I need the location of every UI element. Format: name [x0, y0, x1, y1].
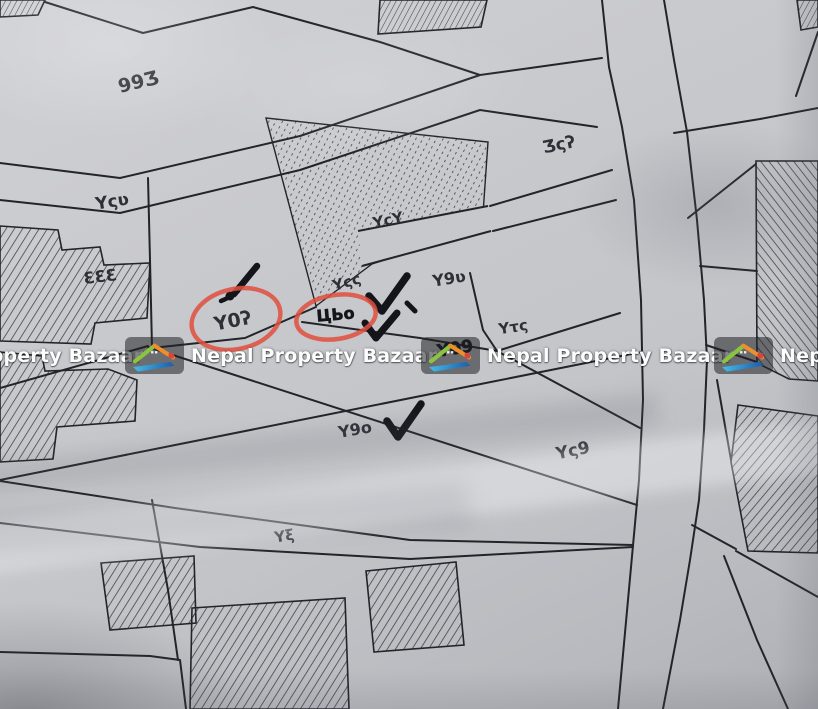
boundary-junction-wedge: [152, 307, 316, 348]
logo-roof-right: [744, 346, 763, 358]
building-left-upper: [0, 226, 150, 344]
building-top-center: [378, 0, 487, 34]
plot-number-488: Yςς: [329, 270, 362, 295]
house-logo-icon: [714, 337, 773, 374]
pen-slash-mark: [234, 266, 257, 294]
boundary-b1-left: [688, 164, 756, 218]
logo-base-swoosh: [429, 362, 470, 372]
logo-roof-left: [431, 346, 450, 362]
checkmark-annotation: [387, 404, 421, 437]
logo-roof-left: [724, 346, 743, 362]
boundary-lines: [0, 0, 818, 709]
paper-crease-shadow: [0, 481, 471, 558]
logo-window: [155, 351, 157, 353]
boundary-b1-low: [700, 266, 757, 271]
plot-number-382: Ʒςʔ: [541, 132, 577, 158]
watermark: Nepal Property Bazaar: [421, 337, 733, 374]
checkmark-annotation: [365, 313, 397, 338]
plot-number-490: Y9o: [336, 417, 373, 442]
watermark-badge: [421, 337, 480, 374]
watermark-text: Nepal Property Bazaar: [780, 345, 818, 367]
plot-number-497: Y9ʋ: [430, 267, 467, 291]
logo-window: [451, 351, 453, 353]
cadastral-map: 99ƷYςʋƷςʔƐƐƐY0ʔYcYYςςY9ʋЦЬоY09Y9oYς9YτςY…: [0, 0, 818, 709]
logo-chimney: [758, 353, 763, 358]
watermark-layer: Nepal Property Bazaar Nepal Property Baz…: [0, 0, 818, 709]
paper-shadow-patch: [570, 120, 818, 290]
road-upper-edge: [0, 58, 602, 178]
plot-number-409: Y09: [435, 336, 475, 362]
red-pen-circles: [185, 280, 379, 359]
vertical-road-left-edge: [602, 0, 643, 709]
boundary-br1: [692, 525, 736, 549]
plot-number-484: YcY: [370, 208, 406, 232]
house-logo-icon: [421, 337, 480, 374]
boundary-v4: [470, 273, 497, 351]
plot-number-46: Yξ: [272, 526, 295, 547]
boundary-br2: [736, 551, 818, 597]
plot-number-460: ЦЬо: [316, 303, 356, 325]
watermark-text: Nepal Property Bazaar: [191, 345, 437, 367]
logo-chimney: [465, 353, 470, 358]
boundary-f1: [490, 170, 612, 206]
plot-number-428: Yτς: [496, 316, 529, 339]
building-left-lower: [0, 352, 137, 462]
building-top-right: [797, 0, 818, 30]
boundary-f2: [493, 200, 616, 231]
plot-number-487: Yςʋ: [93, 190, 130, 215]
boundary-bottom-left: [0, 652, 186, 709]
central-path-band: [358, 206, 491, 266]
building-bottom-left: [101, 556, 196, 630]
house-logo-icon: [125, 337, 184, 374]
paper-highlight: [0, 0, 280, 140]
logo-roof-left: [135, 346, 154, 362]
paper-crease-shadow: [0, 392, 660, 499]
boundary-g1: [0, 346, 148, 388]
boundary-right-strip: [674, 108, 818, 133]
boundary-road-to-building: [706, 345, 757, 362]
boundary-through-circle: [302, 322, 497, 351]
vertical-road-right-edge: [663, 0, 707, 709]
pen-slash-hook: [221, 291, 238, 301]
path-lower-upper: [0, 481, 633, 545]
building-footprints: [0, 0, 818, 709]
red-circle-460: [293, 289, 379, 345]
logo-base-swoosh: [722, 362, 763, 372]
building-bottom-center: [190, 598, 349, 709]
plot-number-333: ƐƐƐ: [83, 265, 118, 288]
boundary-v3: [152, 500, 178, 660]
logo-roof-right: [155, 346, 174, 358]
plot-number-993: 99Ʒ: [116, 67, 161, 98]
boundary-vertical-left: [148, 178, 152, 348]
map-photo: 99ƷYςʋƷςʔƐƐƐY0ʔYcYYςςY9ʋЦЬоY09Y9oYς9YτςY…: [0, 0, 818, 709]
watermark-text: Nepal Property Bazaar: [487, 345, 733, 367]
building-right-upper: [756, 161, 818, 381]
logo-window: [744, 351, 746, 353]
building-top-left: [0, 0, 45, 17]
boundary-top-right-corner: [796, 32, 818, 96]
watermark-badge: [714, 337, 773, 374]
watermark: Nepal Property Bazaar: [0, 337, 143, 374]
road-lower-edge: [0, 110, 597, 213]
boundary-f4: [497, 351, 640, 428]
pen-tick: [407, 303, 415, 311]
logo-roof-right: [451, 346, 470, 358]
edge-shadow: [0, 669, 818, 709]
red-circle-502: [185, 280, 286, 359]
boundary-top-zigzag: [45, 2, 480, 75]
plot-number-489: Yς9: [553, 438, 592, 465]
logo-window: [740, 351, 742, 353]
pen-slash-dot: [226, 292, 235, 301]
watermark: Nepal Property Bazaar: [714, 337, 818, 374]
boundary-diag-cross: [0, 352, 641, 480]
logo-chimney: [169, 353, 174, 358]
building-right-lower: [731, 405, 818, 553]
plot-number-502: Y0ʔ: [211, 307, 253, 336]
boundary-br3: [724, 556, 788, 709]
logo-base-swoosh: [133, 362, 174, 372]
checkmark-annotation: [369, 276, 407, 311]
watermark: Nepal Property Bazaar: [125, 337, 437, 374]
building-bottom-mid: [366, 562, 464, 652]
boundary-f3: [497, 313, 620, 351]
logo-window: [447, 351, 449, 353]
boundary-b2-left: [717, 380, 731, 460]
boundary-diag-long: [148, 347, 637, 505]
watermark-text: Nepal Property Bazaar: [0, 345, 143, 367]
corner-shadow: [0, 600, 250, 709]
pen-annotations: [221, 266, 421, 437]
building-central: [266, 118, 488, 306]
paper-highlight: [180, 10, 540, 160]
logo-window: [151, 351, 153, 353]
watermark-badge: [125, 337, 184, 374]
edge-shadow: [776, 0, 818, 709]
path-lower-lower: [0, 523, 633, 559]
paper-crease-highlight: [0, 408, 818, 579]
plot-numbers: 99ƷYςʋƷςʔƐƐƐY0ʔYcYYςςY9ʋЦЬоY09Y9oYς9YτςY…: [83, 67, 592, 547]
